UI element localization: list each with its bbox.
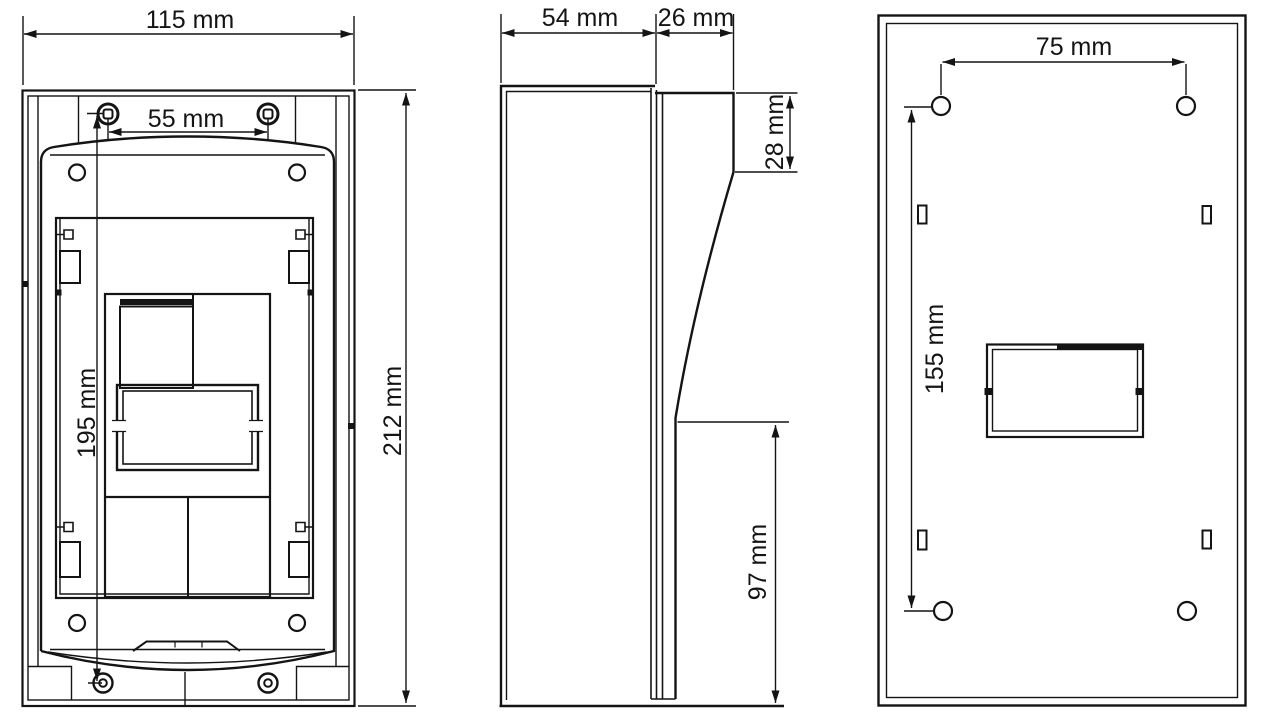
- device-recess-outer: [117, 385, 258, 470]
- front-dim-overall-height: 212 mm: [358, 90, 416, 706]
- mount-hole-bottom-left: [934, 602, 952, 620]
- hood-hole-bottom-left: [69, 615, 85, 631]
- back-dim-75-extension-lines: [941, 64, 1186, 95]
- side-dim-lower-height: 97 mm: [678, 422, 790, 703]
- side-dim-hood-edge: 28 mm: [735, 93, 798, 172]
- front-dim-overall-width: 115 mm: [23, 6, 354, 85]
- side-dim-97-label: 97 mm: [744, 524, 772, 600]
- hood-hole-top-left: [69, 165, 85, 181]
- back-dim-155-label: 155 mm: [921, 304, 949, 394]
- plate-edge-tick-left: [56, 290, 62, 296]
- front-view: 115 mm 55 mm 195 mm: [23, 6, 417, 706]
- recess-notch-gap-left: [112, 421, 126, 432]
- plate-edge-tick-right: [308, 290, 314, 296]
- front-dim-screw-spacing: 55 mm: [108, 105, 268, 140]
- cutout-side-tab-right: [1136, 388, 1145, 395]
- side-dim-26-label: 26 mm: [658, 4, 734, 32]
- back-dim-75-label: 75 mm: [1036, 33, 1112, 61]
- mount-hole-bottom-right: [1178, 602, 1196, 620]
- front-dim-55-label: 55 mm: [148, 105, 224, 133]
- side-body-outline: [501, 86, 655, 706]
- front-dim-195-label: 195 mm: [73, 368, 101, 458]
- technical-drawing-page: 115 mm 55 mm 195 mm: [0, 0, 1267, 725]
- front-right-wall-weld-tick: [348, 423, 355, 429]
- cutout-inner: [993, 350, 1138, 432]
- screw-head-ring: [259, 674, 278, 693]
- front-left-wall-weld-tick: [23, 281, 29, 287]
- side-backplate-lines: [651, 88, 663, 699]
- screw-drive-socket: [104, 110, 113, 119]
- side-body-inner-line: [507, 92, 652, 701]
- cutout-outer: [987, 345, 1143, 438]
- screw-drive-socket: [264, 110, 273, 119]
- back-view: 75 mm 155 mm: [879, 16, 1246, 706]
- back-cable-cutout: [985, 345, 1145, 438]
- side-hood-profile: [655, 93, 734, 699]
- back-dim-hole-spacing-h: 75 mm: [941, 33, 1186, 95]
- front-device-panel: [105, 294, 270, 597]
- recess-notch-gap-right: [249, 421, 263, 432]
- device-display-window: [120, 294, 193, 388]
- back-keyhole-slots: [918, 206, 1211, 550]
- drawing-canvas: 115 mm 55 mm 195 mm: [0, 0, 1267, 725]
- screw-drive-socket: [264, 679, 272, 687]
- side-dim-28-label: 28 mm: [761, 94, 789, 170]
- front-bottom-screw-right: [259, 674, 278, 693]
- cutout-side-tab-left: [985, 388, 994, 395]
- hood-hole-bottom-right: [289, 615, 305, 631]
- mount-hole-top-right: [1177, 97, 1195, 115]
- front-dim-212-label: 212 mm: [379, 366, 407, 456]
- hood-hole-top-right: [289, 165, 305, 181]
- front-dim-width-label: 115 mm: [146, 6, 234, 34]
- side-dim-depths: 54 mm 26 mm: [501, 4, 734, 90]
- side-dim-54-label: 54 mm: [542, 4, 618, 32]
- mount-hole-top-left: [932, 97, 950, 115]
- device-recess-inner: [123, 391, 252, 464]
- side-view: 54 mm 26 mm 28 mm 97 mm: [500, 4, 798, 706]
